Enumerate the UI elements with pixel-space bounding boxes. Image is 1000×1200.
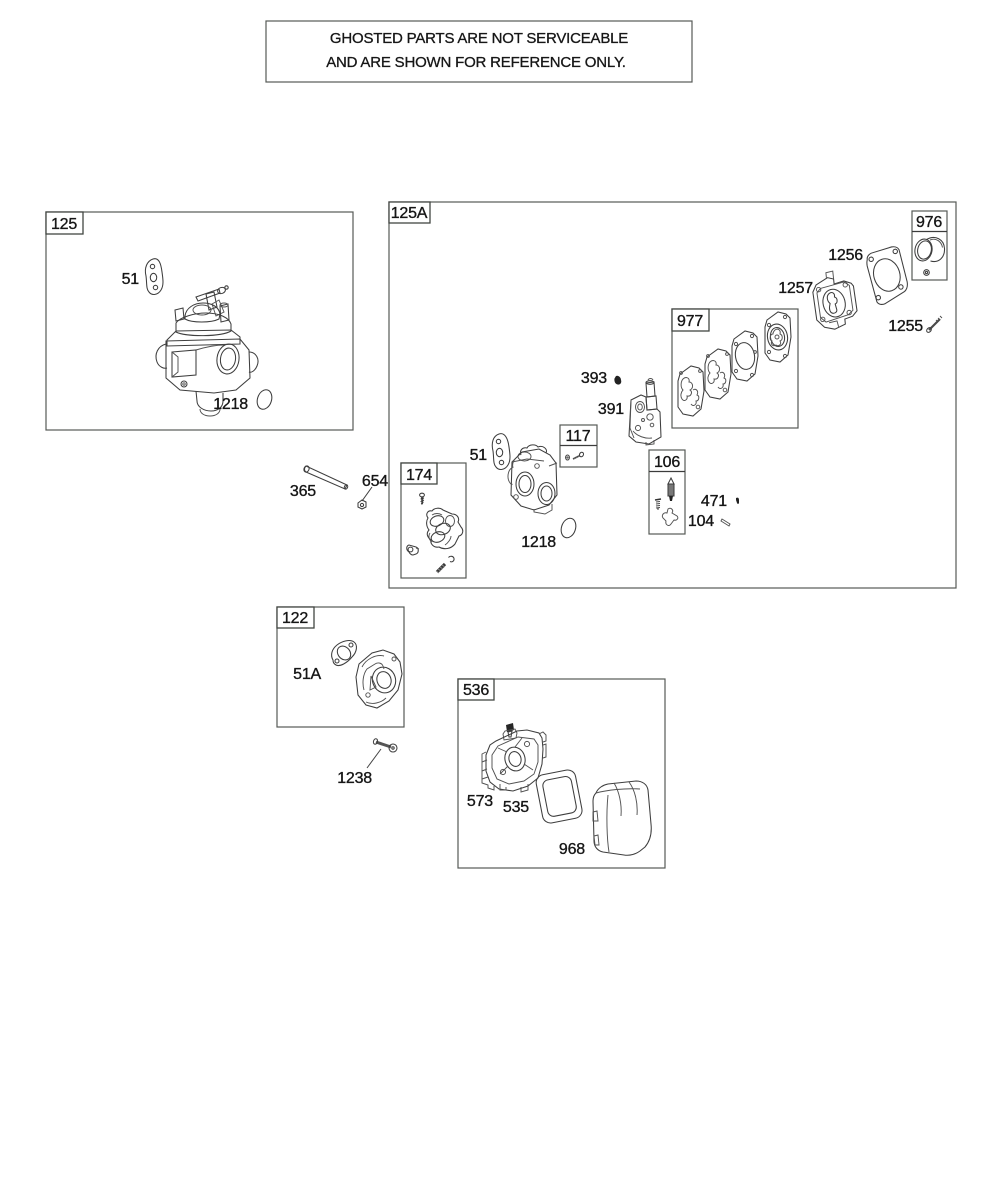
svg-text:977: 977 — [677, 313, 703, 330]
svg-text:125A: 125A — [391, 205, 428, 222]
svg-text:535: 535 — [503, 799, 529, 816]
svg-text:51: 51 — [122, 271, 140, 288]
svg-text:365: 365 — [290, 483, 316, 500]
svg-text:393: 393 — [581, 370, 607, 387]
svg-text:51A: 51A — [293, 666, 321, 683]
svg-text:117: 117 — [566, 428, 591, 445]
svg-text:122: 122 — [282, 610, 308, 627]
svg-text:AND ARE SHOWN FOR REFERENCE ON: AND ARE SHOWN FOR REFERENCE ONLY. — [326, 54, 626, 71]
svg-text:1256: 1256 — [828, 247, 863, 264]
svg-text:536: 536 — [463, 682, 489, 699]
svg-text:1218: 1218 — [213, 396, 248, 413]
svg-text:125: 125 — [51, 216, 77, 233]
svg-text:471: 471 — [701, 493, 727, 510]
svg-text:1255: 1255 — [888, 318, 923, 335]
svg-text:1257: 1257 — [778, 280, 813, 297]
svg-text:573: 573 — [467, 793, 493, 810]
svg-text:106: 106 — [654, 454, 680, 471]
svg-text:968: 968 — [559, 841, 585, 858]
svg-text:976: 976 — [916, 214, 942, 231]
svg-text:104: 104 — [688, 513, 714, 530]
svg-text:654: 654 — [362, 473, 388, 490]
svg-text:1218: 1218 — [521, 534, 556, 551]
svg-text:51: 51 — [470, 447, 488, 464]
svg-text:GHOSTED PARTS ARE NOT SERVICEA: GHOSTED PARTS ARE NOT SERVICEABLE — [330, 30, 628, 47]
svg-text:1238: 1238 — [337, 770, 372, 787]
svg-text:391: 391 — [598, 401, 624, 418]
svg-text:174: 174 — [406, 467, 432, 484]
